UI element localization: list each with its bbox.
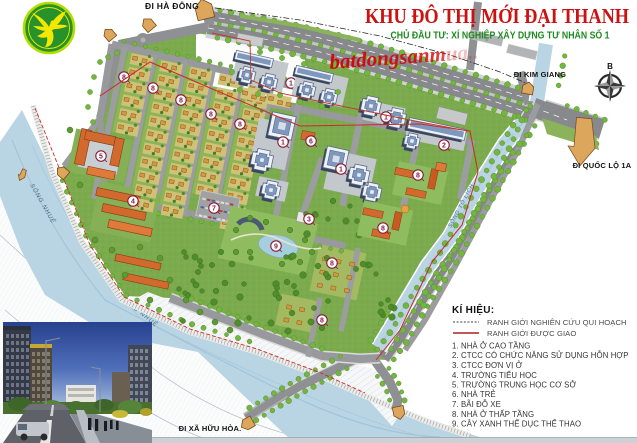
svg-text:9. CÂY XANH THỂ DỤC THỂ THAO: 9. CÂY XANH THỂ DỤC THỂ THAO: [452, 420, 581, 429]
svg-text:RANH GIỚI ĐƯỢC GIAO: RANH GIỚI ĐƯỢC GIAO: [487, 329, 576, 338]
svg-text:8. NHÀ Ở THẤP TẦNG: 8. NHÀ Ở THẤP TẦNG: [452, 409, 534, 419]
svg-text:8: 8: [179, 98, 183, 105]
svg-text:KHU ĐÔ THỊ MỚI ĐẠI THANH: KHU ĐÔ THỊ MỚI ĐẠI THANH: [365, 4, 629, 28]
svg-text:3. CTCC ĐƠN VỊ Ở: 3. CTCC ĐƠN VỊ Ở: [452, 361, 523, 370]
svg-text:6. NHÀ TRẺ: 6. NHÀ TRẺ: [452, 390, 496, 399]
svg-text:9: 9: [274, 244, 278, 251]
svg-text:KÍ HIỆU:: KÍ HIỆU:: [452, 303, 494, 316]
svg-text:1: 1: [339, 167, 343, 174]
svg-text:8: 8: [381, 226, 385, 233]
svg-text:8: 8: [151, 86, 155, 93]
svg-text:5. TRƯỜNG TRUNG HỌC CƠ SỞ: 5. TRƯỜNG TRUNG HỌC CƠ SỞ: [452, 381, 576, 390]
svg-text:8: 8: [330, 261, 334, 268]
svg-text:RANH GIỚI NGHIÊN CỨU QUI HOẠCH: RANH GIỚI NGHIÊN CỨU QUI HOẠCH: [487, 318, 627, 327]
svg-text:6: 6: [309, 139, 313, 146]
svg-text:2. CTCC CÓ CHỨC NĂNG SỬ DỤNG H: 2. CTCC CÓ CHỨC NĂNG SỬ DỤNG HỖN HỢP: [452, 351, 629, 360]
svg-text:1: 1: [289, 81, 293, 88]
svg-text:1: 1: [281, 140, 285, 147]
svg-text:CHỦ ĐẦU TƯ: XÍ NGHIỆP XÂY DỰNG: CHỦ ĐẦU TƯ: XÍ NGHIỆP XÂY DỰNG TƯ NHÂN S…: [391, 28, 610, 42]
svg-text:3: 3: [307, 217, 311, 224]
svg-text:4. TRƯỜNG TIỂU HỌC: 4. TRƯỜNG TIỂU HỌC: [452, 371, 537, 380]
svg-text:5: 5: [99, 154, 103, 161]
svg-text:7: 7: [212, 206, 216, 213]
svg-text:ĐI HÀ ĐÔNG: ĐI HÀ ĐÔNG: [145, 0, 199, 11]
svg-text:B: B: [607, 62, 613, 71]
svg-text:7. BÃI ĐỖ XE: 7. BÃI ĐỖ XE: [452, 400, 501, 409]
svg-text:4: 4: [131, 199, 135, 206]
svg-text:8: 8: [209, 112, 213, 119]
svg-text:1. NHÀ Ở CAO TẦNG: 1. NHÀ Ở CAO TẦNG: [452, 341, 530, 351]
svg-text:8: 8: [320, 318, 324, 325]
svg-text:8: 8: [416, 173, 420, 180]
svg-text:2: 2: [442, 143, 446, 150]
svg-text:ĐI XÃ HỮU HÒA.: ĐI XÃ HỮU HÒA.: [179, 424, 242, 433]
svg-text:8: 8: [238, 122, 242, 129]
svg-text:ĐI KIM GIANG: ĐI KIM GIANG: [514, 70, 566, 79]
svg-text:ĐI QUỐC LỘ 1A: ĐI QUỐC LỘ 1A: [573, 160, 632, 170]
